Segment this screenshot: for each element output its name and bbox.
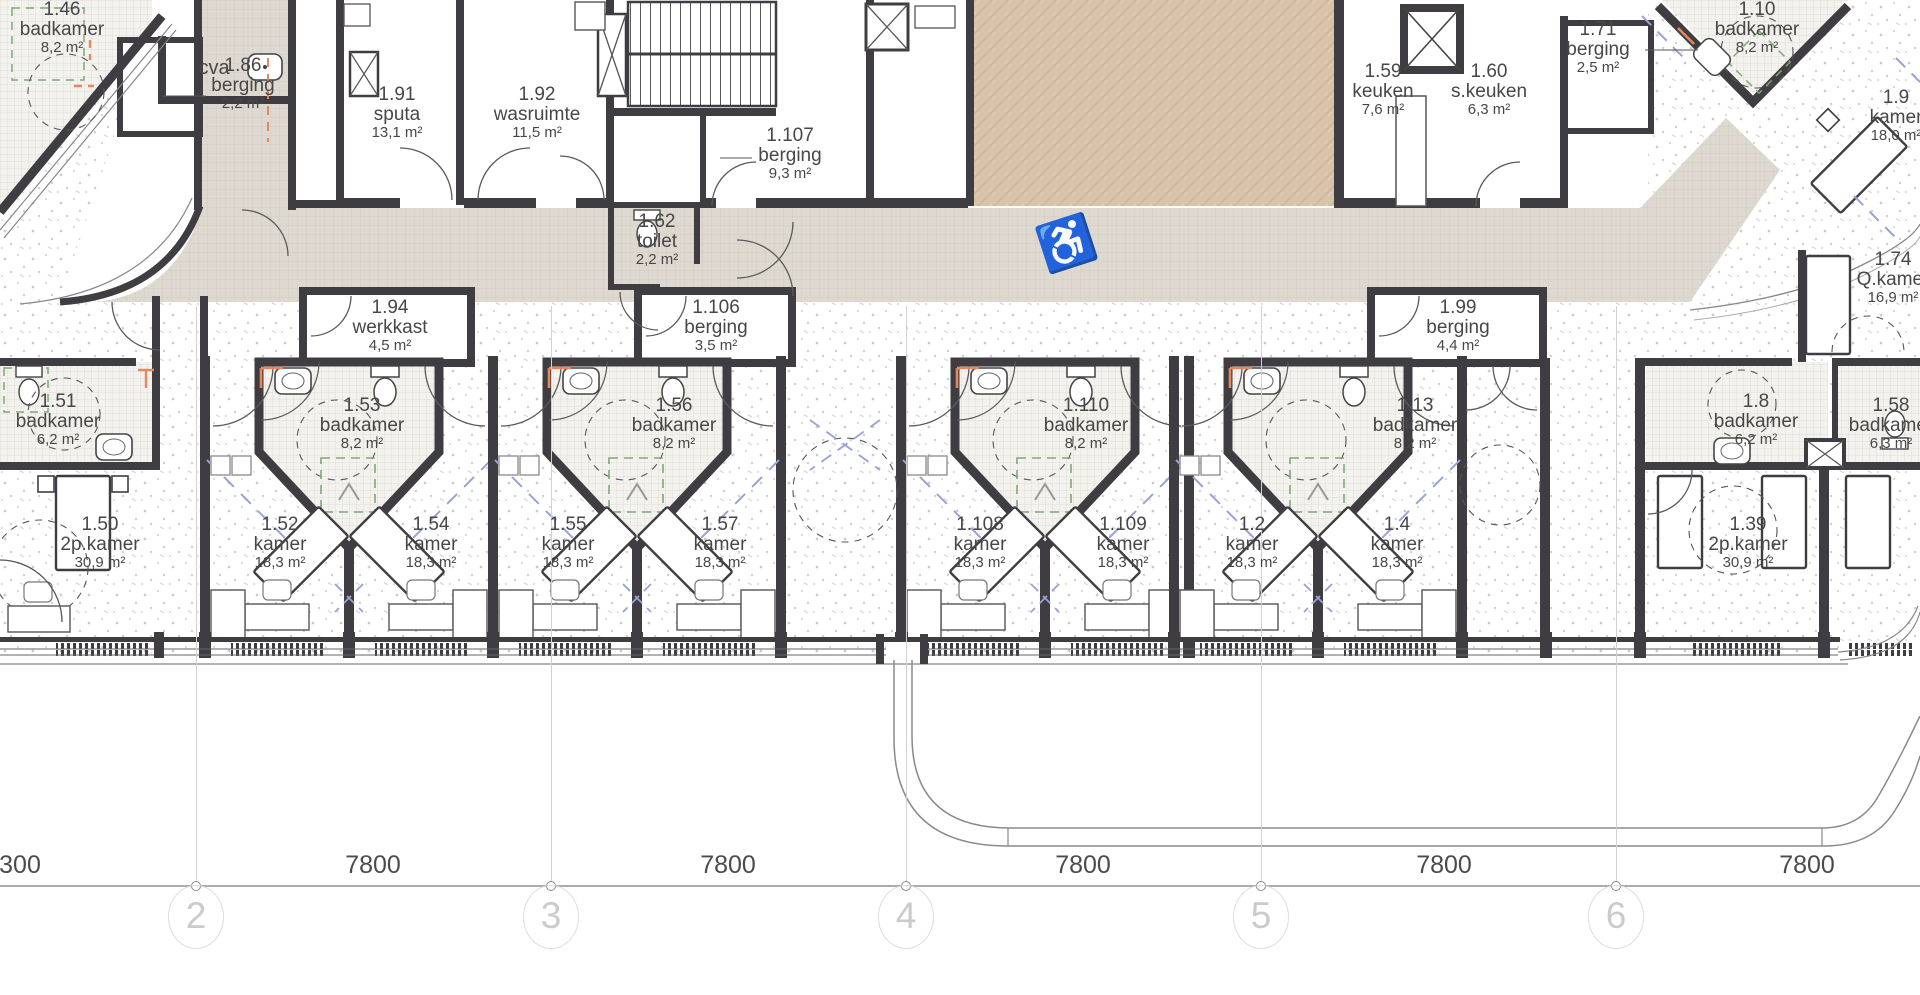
room-label-1.8: 1.8badkamer6,2 m²: [1714, 392, 1799, 447]
room-label-1.13: 1.13badkamer8,2 m²: [1373, 396, 1458, 451]
grid-bubble-3: 3: [523, 885, 579, 949]
room-label-1.53: 1.53badkamer8,2 m²: [320, 396, 405, 451]
bed-icon: [1806, 256, 1850, 354]
grid-line-4: [906, 306, 907, 886]
driveway: [894, 660, 1920, 846]
plan-drawing: ♿: [0, 0, 1920, 995]
room-label-1.92: 1.92wasruimte11,5 m²: [494, 85, 581, 140]
dimension-text-1: 7800: [345, 851, 401, 880]
floor-plan: ♿ 1.46badkamer8,2 m²cva1.86berging2,2 m²…: [0, 0, 1920, 995]
room-label-1.10: 1.10badkamer8,2 m²: [1715, 0, 1800, 55]
room-label-1.39: 1.392p.kamer30,9 m²: [1708, 515, 1787, 570]
grid-line-6: [1616, 306, 1617, 886]
room-label-1.107: 1.107berging9,3 m²: [758, 126, 821, 181]
shaft-icon: [866, 4, 908, 50]
room-label-1.51: 1.51badkamer6,2 m²: [16, 392, 101, 447]
dimension-text-2: 7800: [700, 851, 756, 880]
bed-icon: [1658, 476, 1702, 568]
washer-icon: [575, 2, 605, 30]
room-label-1.57: 1.57kamer18,3 m²: [694, 515, 747, 570]
room-label-1.58: 1.58badkamer6,3 m²: [1849, 396, 1920, 451]
grid-line-2: [196, 306, 197, 886]
room-label-1.91: 1.91sputa13,1 m²: [372, 85, 423, 140]
stairs-icon: [628, 2, 776, 106]
grid-bubble-2: 2: [168, 885, 224, 949]
dimension-text-5: 7800: [1779, 851, 1835, 880]
room-label-1.99: 1.99berging4,4 m²: [1426, 298, 1489, 353]
grid-bubble-6: 6: [1588, 885, 1644, 949]
room-label-1.60: 1.60s.keuken6,3 m²: [1451, 62, 1527, 117]
room-label-1.62: 1.62toilet2,2 m²: [636, 212, 679, 267]
grid-bubble-4: 4: [878, 885, 934, 949]
room-label-1.4: 1.4kamer18,3 m²: [1371, 515, 1424, 570]
room-label-1.74: 1.74Q.kamer16,9 m²: [1857, 250, 1920, 305]
room-label-1.71: 1.71berging2,5 m²: [1566, 20, 1629, 75]
room-label-1.56: 1.56badkamer8,2 m²: [632, 396, 717, 451]
dimension-text-4: 7800: [1416, 851, 1472, 880]
room-label-1.9: 1.9kamer18,0 m²: [1870, 88, 1920, 143]
room-label-1.50: 1.502p.kamer30,9 m²: [60, 515, 139, 570]
room-label-1.52: 1.52kamer18,3 m²: [254, 515, 307, 570]
dimension-text-3: 7800: [1055, 851, 1111, 880]
elevator-icon: [1404, 8, 1460, 70]
dimension-text-0: 300: [0, 851, 41, 880]
bed-icon: [1846, 476, 1890, 568]
grid-bubble-5: 5: [1233, 885, 1289, 949]
shaft-icon: [1806, 440, 1844, 468]
room-label-1.46: 1.46badkamer8,2 m²: [20, 0, 105, 55]
room-label-1.55: 1.55kamer18,3 m²: [542, 515, 595, 570]
room-label-1.94: 1.94werkkast4,5 m²: [353, 298, 428, 353]
room-label-1.108: 1.108kamer18,3 m²: [954, 515, 1007, 570]
room-label-1.2: 1.2kamer18,3 m²: [1226, 515, 1279, 570]
grid-line-3: [551, 306, 552, 886]
sink-icon: [344, 4, 370, 26]
room-label-1.54: 1.54kamer18,3 m²: [405, 515, 458, 570]
grid-line-5: [1261, 306, 1262, 886]
room-label-1.109: 1.109kamer18,3 m²: [1097, 515, 1150, 570]
room-label-1.110: 1.110badkamer8,2 m²: [1044, 396, 1129, 451]
room-label-1.106: 1.106berging3,5 m²: [684, 298, 747, 353]
room-label-1.59: 1.59keuken7,6 m²: [1352, 62, 1413, 117]
room-label-1.86: 1.86berging2,2 m²: [211, 56, 274, 111]
